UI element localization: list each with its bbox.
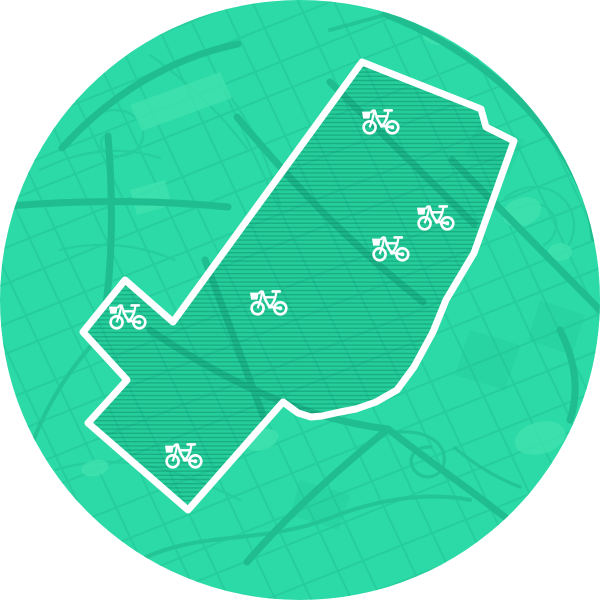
page — [0, 0, 600, 600]
map-canvas — [0, 0, 600, 600]
